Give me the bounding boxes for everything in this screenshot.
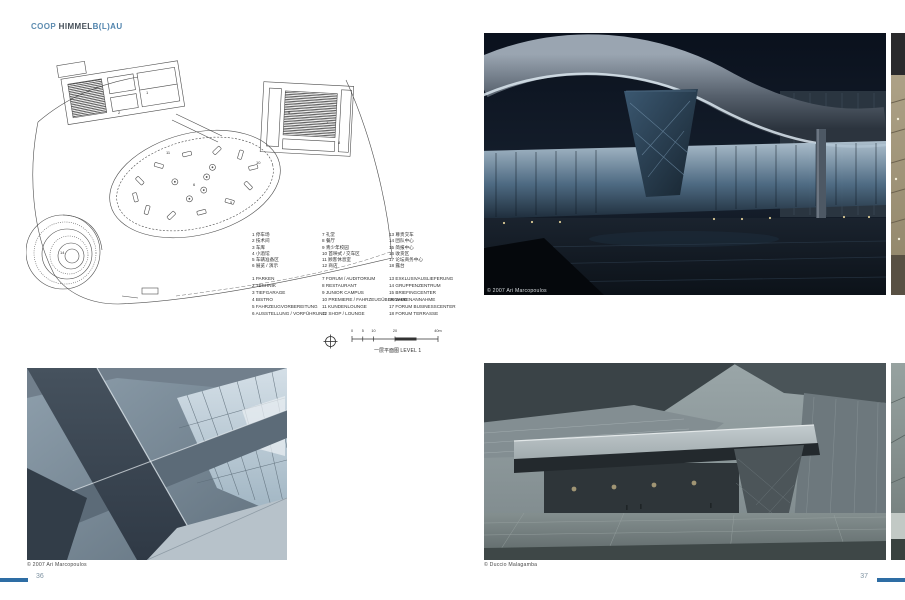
legend-item: 18 FORUM TERRASSE [389,310,456,317]
legend-item: 13 EXKLUSIVAUSLIEFERUNG [389,275,456,282]
plan-title-chinese: 一层平面图 [374,348,399,354]
legend-de-col1: 1 PARKEN2 TECHNIK3 TIEFGARAGE4 BISTRO5 F… [252,275,326,317]
photo-bmw-welt-dusk [484,363,886,560]
caption-night: © 2007 Ari Marcopoulos [487,288,547,294]
svg-text:2: 2 [118,110,121,115]
brand-himmel: HIMMEL [59,22,93,31]
page-number-right: 37 [848,573,868,580]
page-number-left: 36 [36,573,44,580]
legend-item: 3 TIEFGARAGE [252,289,326,296]
page-accent-bar-left [0,578,28,582]
book-spread: COOP HIMMELB(L)AU [0,0,905,600]
scale-bar [350,332,440,346]
north-symbol-icon [323,334,338,349]
legend-item: 1 PARKEN [252,275,326,282]
legend-item: 6 展览 / 演示 [252,263,279,269]
legend-cn-col2: 7 礼堂8 餐厅9 青少年校园10 首映式 / 交车区11 顾客休息室12 商店 [322,232,360,270]
svg-text:11: 11 [166,150,171,155]
legend-item: 18 露台 [389,263,423,269]
brand-blau: B(L)AU [93,22,123,31]
legend-item: 4 BISTRO [252,296,326,303]
photo-edge-sliver-top [891,33,905,295]
brand-header: COOP HIMMELB(L)AU [31,22,123,31]
legend-item: 14 GRUPPENZENTRUM [389,282,456,289]
legend-item: 17 FORUM BUSINESSCENTER [389,303,456,310]
svg-text:6: 6 [193,182,196,187]
plan-title-level: LEVEL 1 [400,348,421,354]
legend-cn-col1: 1 停车场2 技术间3 车库4 小酒馆5 车辆准备区6 展览 / 演示 [252,232,279,270]
photo-interior-steel [27,368,287,560]
legend-item: 2 TECHNIK [252,282,326,289]
legend-item: 16 WARENANNAHME [389,296,456,303]
svg-text:10: 10 [256,160,261,165]
legend-cn-col3: 13 尊贵交车14 团队中心15 简报中心16 收货区17 论坛商务中心18 露… [389,232,423,270]
legend-item: 5 FAHRZEUGVORBEREITUNG [252,303,326,310]
photo-edge-sliver-bottom [891,363,905,560]
photo-bmw-welt-night [484,33,886,295]
svg-text:8: 8 [338,140,341,145]
caption-interior: © 2007 Ari Marcopoulos [27,562,87,568]
svg-text:1: 1 [146,90,149,95]
legend-item: 15 BRIEFINGCENTER [389,289,456,296]
legend-item: 12 商店 [322,263,360,269]
legend-de-col3: 13 EXKLUSIVAUSLIEFERUNG14 GRUPPENZENTRUM… [389,275,456,317]
plan-title: 一层平面图 LEVEL 1 [374,347,421,354]
caption-dusk: © Duccio Malagamba [484,562,537,568]
page-accent-bar-right [877,578,905,582]
svg-text:14: 14 [60,250,65,255]
legend-item: 6 AUSSTELLUNG / VORFÜHRUNG [252,310,326,317]
brand-coop: COOP [31,22,56,31]
